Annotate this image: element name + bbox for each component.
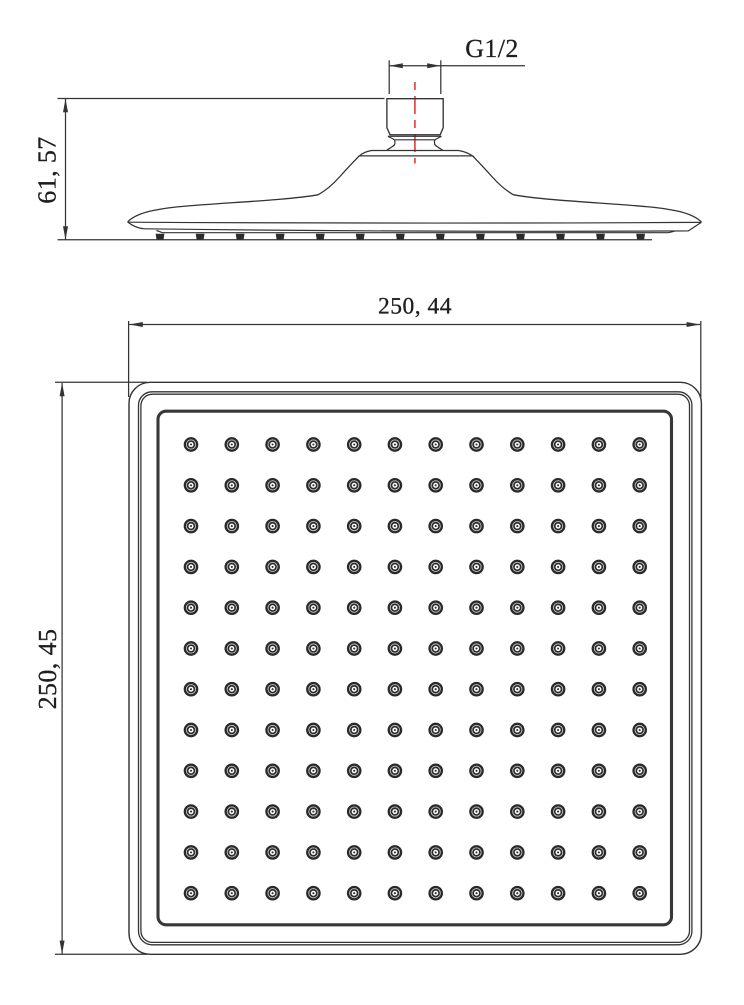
svg-text:G1/2: G1/2: [465, 34, 519, 63]
svg-text:61, 57: 61, 57: [33, 136, 62, 203]
svg-text:250, 45: 250, 45: [33, 629, 62, 710]
svg-text:250, 44: 250, 44: [378, 293, 452, 319]
